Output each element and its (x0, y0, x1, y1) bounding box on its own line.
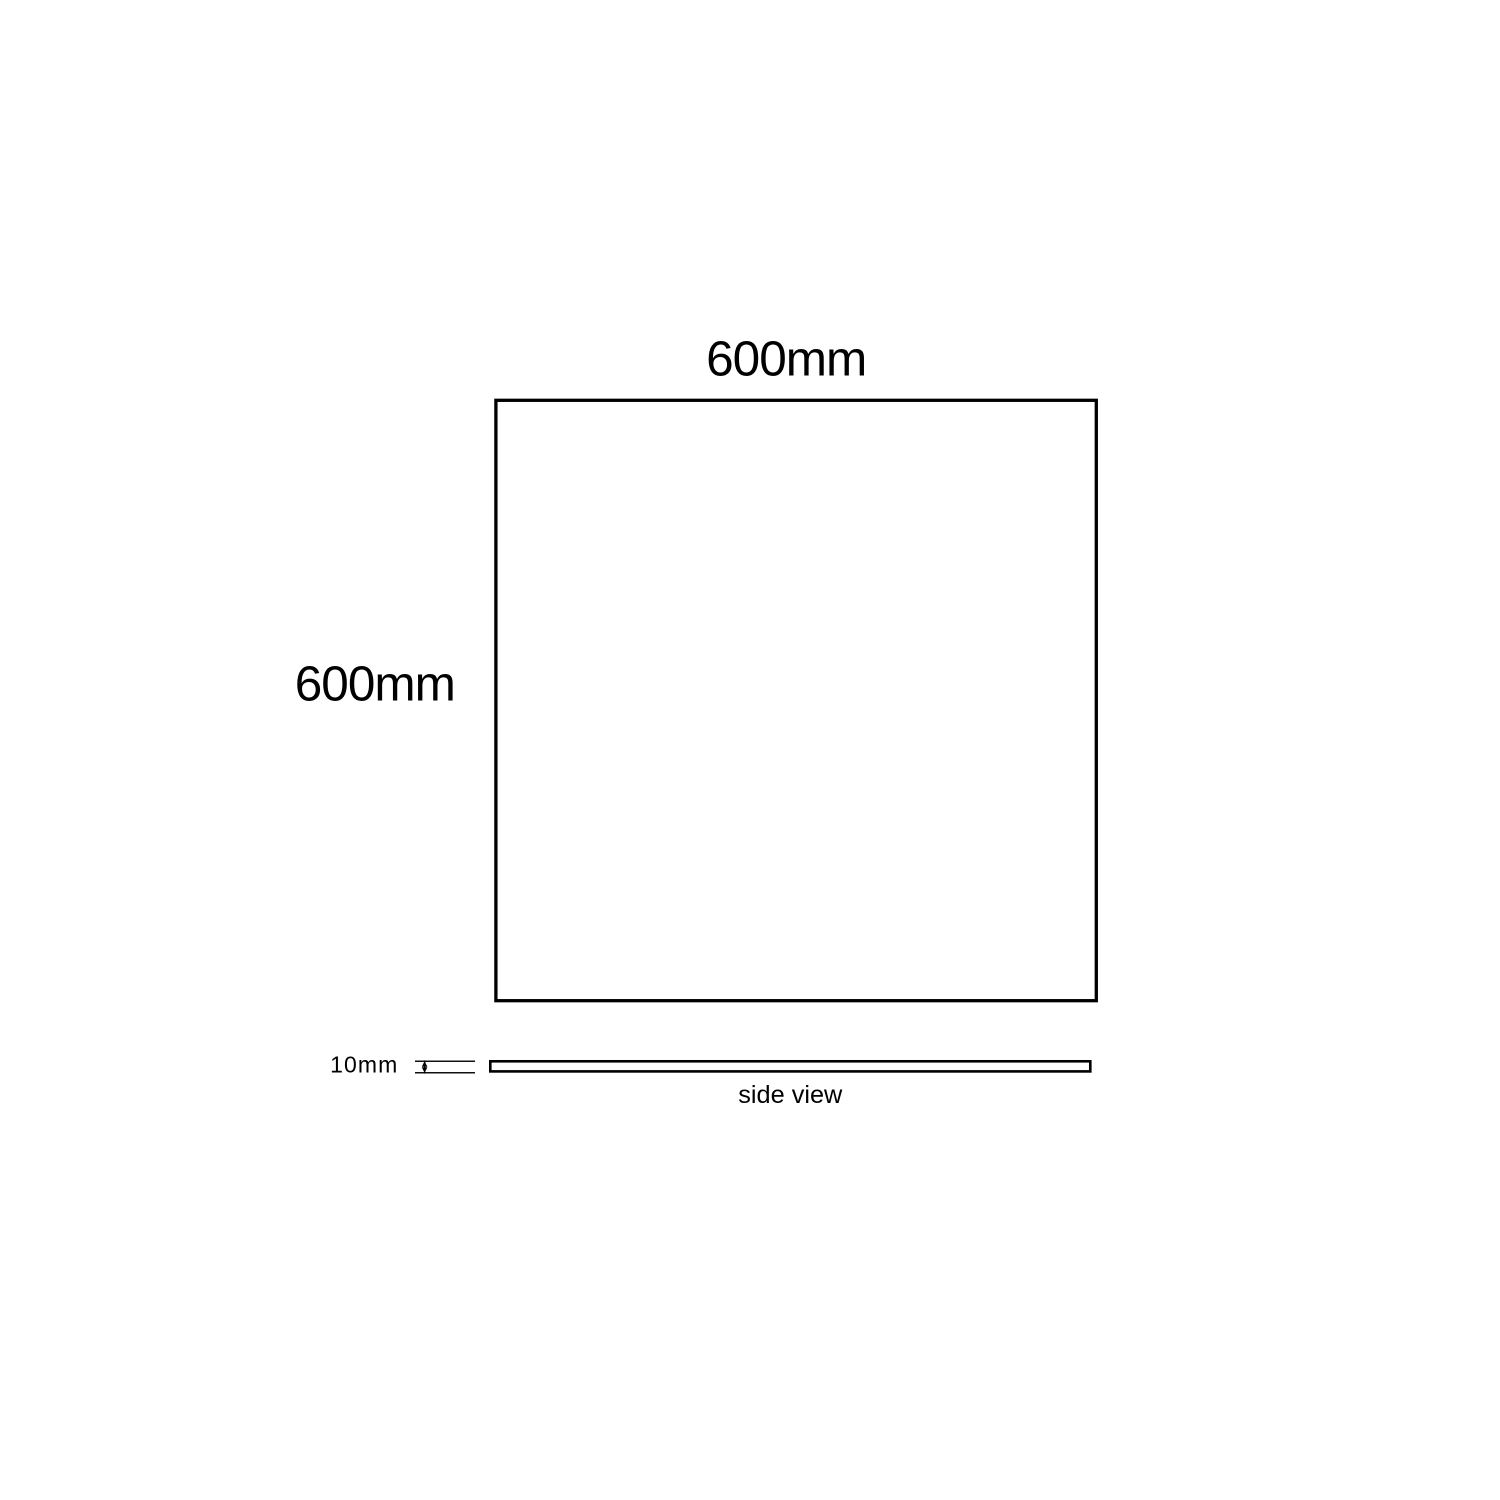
svg-text:600mm: 600mm (706, 332, 866, 387)
svg-text:side view: side view (738, 1081, 843, 1109)
svg-text:600mm: 600mm (295, 657, 455, 712)
svg-text:10mm: 10mm (330, 1052, 398, 1078)
